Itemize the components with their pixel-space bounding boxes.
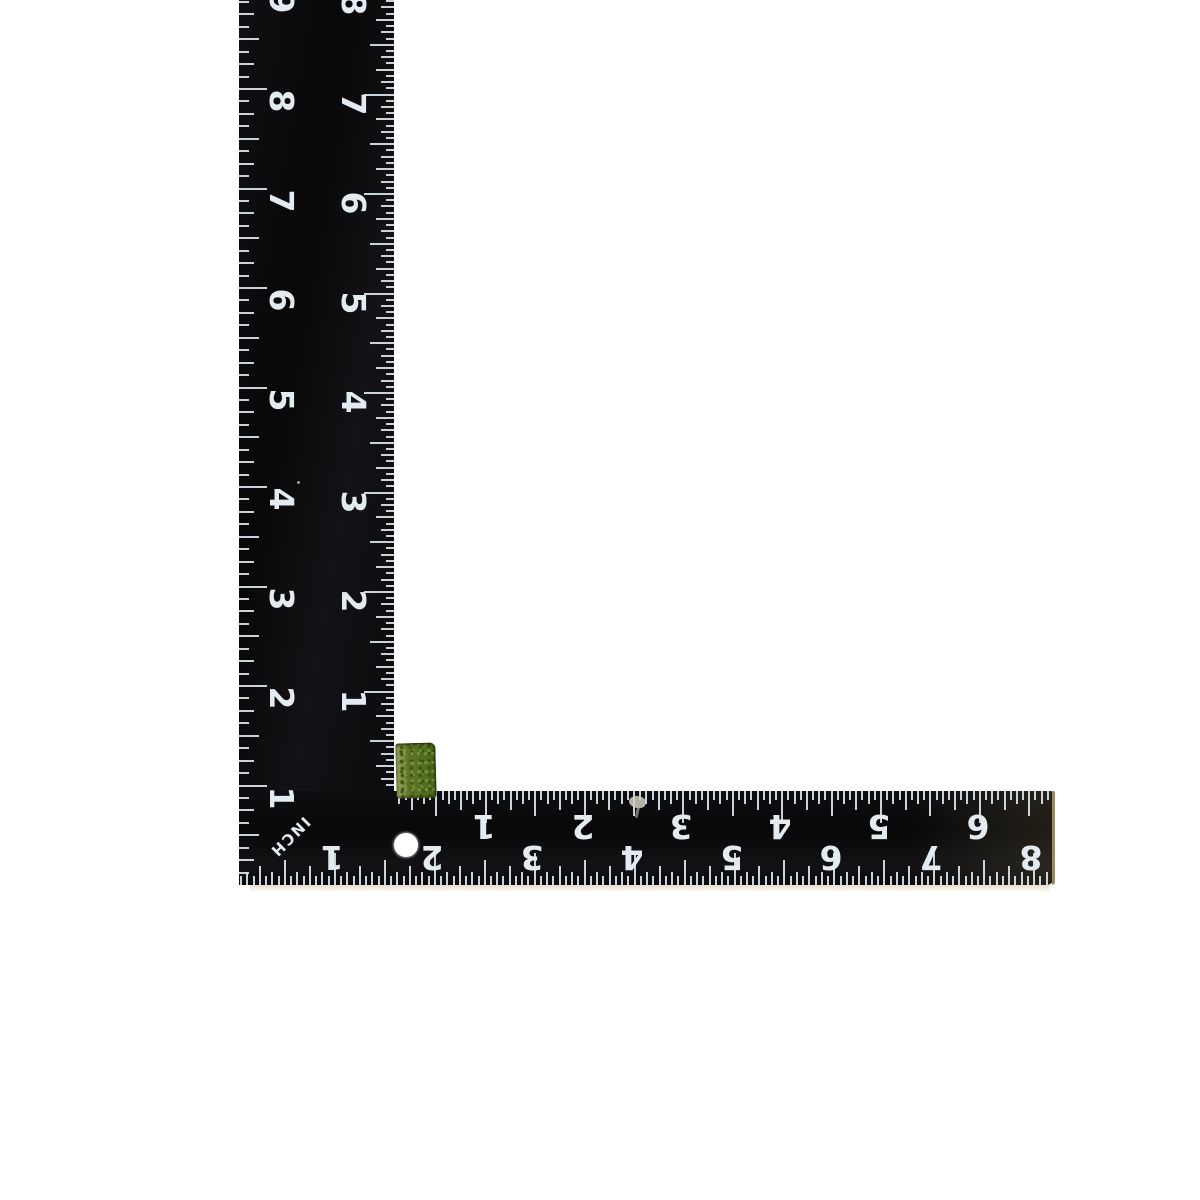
horizontal-inner-top-tick-sixteenth [454,791,456,800]
vertical-inner-right-tick-eighth [381,56,394,58]
horizontal-outer-bottom-tick-sixteenth [565,876,567,885]
vertical-outer-left-tick-quarter [239,312,254,314]
vertical-inner-right-tick-eighth [381,31,394,33]
vertical-outer-left-tick-eighth [239,349,249,351]
vertical-inner-right-tick-half [370,143,394,145]
horizontal-inner-top-tick-sixteenth [528,791,530,800]
vertical-inner-right-tick-sixteenth [386,336,394,338]
vertical-inner-right-tick-sixteenth [386,13,394,15]
horizontal-inner-top-tick-sixteenth [1034,791,1036,800]
horizontal-outer-bottom-tick-quarter [559,866,561,885]
bottom-edge-shadow [250,885,1050,892]
vertical-inner-right-tick-sixteenth [386,75,394,77]
vertical-inner-right-tick-sixteenth [386,734,394,736]
horizontal-outer-bottom-tick-quarter [758,866,760,885]
vertical-outer-left-tick-quarter [239,13,254,15]
horizontal-inner-top-tick-sixteenth [664,791,666,800]
vertical-outer-left-tick-eighth [239,449,249,451]
vertical-inner-right-tick-sixteenth [386,485,394,487]
horizontal-outer-bottom-tick-sixteenth [240,876,242,885]
horizontal-inner-top-tick-sixteenth [923,791,925,800]
vertical-inner-right-tick-sixteenth [386,622,394,624]
horizontal-outer-bottom-tick-sixteenth [765,876,767,885]
vertical-inner-right-tick-sixteenth [386,784,394,786]
horizontal-outer-bottom-number-5: 5 [710,835,754,879]
vertical-inner-right-tick-quarter [376,317,394,319]
horizontal-inner-top-tick-sixteenth [689,791,691,800]
horizontal-outer-bottom-tick-sixteenth [1002,876,1004,885]
vertical-outer-left-tick-eighth [239,847,249,849]
vertical-inner-right-tick-sixteenth [386,498,394,500]
horizontal-inner-top-tick-sixteenth [948,791,950,800]
horizontal-inner-top-tick-quarter [905,791,907,810]
vertical-outer-left-number-5: 5 [259,378,303,422]
vertical-inner-right-tick-sixteenth [386,722,394,724]
vertical-outer-left-tick-eighth [239,598,249,600]
vertical-outer-left-tick-eighth [239,498,249,500]
horizontal-inner-top-tick-sixteenth [540,791,542,800]
horizontal-inner-top-tick-sixteenth [503,791,505,800]
horizontal-inner-top-tick-sixteenth [738,791,740,800]
horizontal-inner-top-tick-sixteenth [1010,791,1012,800]
vertical-inner-right-number-6: 6 [331,181,375,225]
vertical-outer-left-tick-eighth [239,374,249,376]
vertical-inner-right-tick-sixteenth [386,100,394,102]
horizontal-inner-top-tick-eighth [522,791,524,804]
vertical-outer-left-tick-quarter [239,660,254,662]
vertical-inner-right-tick-sixteenth [386,187,394,189]
vertical-inner-right-tick-eighth [381,355,394,357]
vertical-inner-right-number-7: 7 [331,82,375,126]
vertical-inner-right-tick-sixteenth [386,386,394,388]
horizontal-inner-top-tick-sixteenth [849,791,851,800]
horizontal-inner-top-tick-eighth [942,791,944,804]
vertical-inner-right-tick-eighth [381,429,394,431]
vertical-inner-right-tick-sixteenth [386,87,394,89]
horizontal-outer-bottom-tick-eighth [996,872,998,885]
horizontal-outer-bottom-tick-eighth [571,872,573,885]
vertical-inner-right-tick-quarter [376,467,394,469]
vertical-inner-right-tick-eighth [381,6,394,8]
horizontal-inner-top-tick-sixteenth [466,791,468,800]
vertical-inner-right-tick-eighth [381,554,394,556]
vertical-inner-right-tick-quarter [376,118,394,120]
vertical-inner-right-tick-sixteenth [386,373,394,375]
vertical-outer-left-tick-eighth [239,822,249,824]
horizontal-inner-top-tick-sixteenth [997,791,999,800]
vertical-outer-left-tick-eighth [239,125,249,127]
vertical-outer-left-number-2: 2 [259,676,303,720]
vertical-inner-right-tick-sixteenth [386,473,394,475]
vertical-inner-right-tick-sixteenth [386,237,394,239]
vertical-inner-right-tick-eighth [381,255,394,257]
horizontal-inner-top-tick-sixteenth [899,791,901,800]
vertical-inner-right-tick-eighth [381,504,394,506]
vertical-inner-right-tick-sixteenth [386,324,394,326]
horizontal-inner-top-tick-sixteenth [936,791,938,800]
horizontal-outer-bottom-tick-sixteenth [865,876,867,885]
vertical-outer-left-tick-eighth [239,722,249,724]
vertical-inner-right-tick-eighth [381,728,394,730]
vertical-outer-left-tick-quarter [239,710,254,712]
horizontal-outer-bottom-tick-eighth [671,872,673,885]
horizontal-outer-bottom-tick-half [983,860,985,885]
horizontal-inner-top-tick-eighth [621,791,623,804]
vertical-inner-right-tick-sixteenth [386,610,394,612]
horizontal-outer-bottom-number-6: 6 [809,835,853,879]
vertical-outer-left-tick-eighth [239,51,249,53]
horizontal-inner-top-tick-sixteenth [812,791,814,800]
vertical-inner-right-tick-quarter [376,516,394,518]
vertical-outer-left-number-6: 6 [259,278,303,322]
vertical-outer-left-tick-eighth [239,76,249,78]
vertical-inner-right-tick-quarter [376,666,394,668]
horizontal-inner-top-number-2: 2 [561,804,605,848]
horizontal-inner-top-tick-quarter [608,791,610,810]
vertical-outer-left-tick-eighth [239,673,249,675]
vertical-inner-right-tick-eighth [381,703,394,705]
vertical-inner-right-tick-eighth [381,404,394,406]
horizontal-outer-bottom-tick-half [684,860,686,885]
vertical-inner-right-tick-eighth [381,181,394,183]
vertical-outer-left-tick-eighth [239,26,249,28]
vertical-inner-right-tick-sixteenth [386,510,394,512]
horizontal-inner-top-tick-eighth [892,791,894,804]
vertical-inner-right-tick-quarter [376,69,394,71]
horizontal-inner-top-tick-eighth [448,791,450,804]
vertical-inner-right-tick-half [370,243,394,245]
vertical-inner-right-tick-sixteenth [386,25,394,27]
horizontal-outer-bottom-tick-half [584,860,586,885]
horizontal-inner-top-tick-sixteenth [652,791,654,800]
vertical-outer-left-tick-half [239,735,259,737]
vertical-outer-left-tick-eighth [239,250,249,252]
vertical-inner-right-tick-sixteenth [386,697,394,699]
vertical-outer-left-tick-quarter [239,411,254,413]
vertical-inner-right-tick-sixteenth [386,199,394,201]
horizontal-outer-bottom-tick-eighth [896,872,898,885]
vertical-outer-left-tick-half [239,635,259,637]
hang-hole [394,833,418,857]
vertical-inner-right-tick-sixteenth [386,535,394,537]
vertical-inner-right-tick-sixteenth [386,212,394,214]
vertical-inner-right-tick-half [370,641,394,643]
horizontal-inner-top-tick-eighth [744,791,746,804]
vertical-outer-left-number-9: 9 [259,0,303,24]
vertical-outer-left-tick-eighth [239,200,249,202]
vertical-outer-left-tick-half [239,436,259,438]
horizontal-outer-bottom-tick-sixteenth [665,876,667,885]
horizontal-outer-bottom-tick-eighth [296,872,298,885]
horizontal-inner-top-tick-sixteenth [1047,791,1049,800]
vertical-inner-right-tick-quarter [376,765,394,767]
vertical-inner-right-tick-eighth [381,106,394,108]
vertical-inner-right-number-8: 8 [331,0,375,26]
green-cube [395,742,436,798]
horizontal-outer-bottom-tick-quarter [259,866,261,885]
vertical-outer-left-tick-quarter [239,163,254,165]
vertical-inner-right-tick-half [370,740,394,742]
horizontal-outer-bottom-tick-sixteenth [802,876,804,885]
horizontal-inner-top-tick-quarter [1004,791,1006,810]
horizontal-inner-top-number-3: 3 [659,804,703,848]
horizontal-outer-bottom-tick-eighth [371,872,373,885]
vertical-outer-left-tick-quarter [239,262,254,264]
vertical-inner-right-tick-sixteenth [386,771,394,773]
vertical-inner-right-tick-half [370,541,394,543]
vertical-inner-right-tick-half [370,342,394,344]
horizontal-inner-top-tick-sixteenth [442,791,444,800]
horizontal-outer-bottom-tick-half [284,860,286,885]
horizontal-inner-top-tick-sixteenth [701,791,703,800]
horizontal-outer-bottom-tick-eighth [271,872,273,885]
vertical-outer-left-tick-half [239,834,259,836]
vertical-inner-right-tick-eighth [381,778,394,780]
vertical-inner-right-tick-half [370,44,394,46]
vertical-outer-left-tick-eighth [239,747,249,749]
vertical-inner-right-tick-eighth [381,330,394,332]
horizontal-inner-top-tick-eighth [719,791,721,804]
horizontal-outer-bottom-tick-sixteenth [902,876,904,885]
horizontal-outer-bottom-tick-half [783,860,785,885]
horizontal-inner-top-tick-half [929,791,931,816]
vertical-outer-left-tick-quarter [239,511,254,513]
horizontal-inner-top-number-5: 5 [857,804,901,848]
vertical-outer-left-tick-eighth [239,474,249,476]
vertical-inner-right-tick-sixteenth [386,299,394,301]
horizontal-inner-top-tick-eighth [695,791,697,804]
horizontal-outer-bottom-tick-sixteenth [478,876,480,885]
horizontal-outer-bottom-tick-eighth [471,872,473,885]
horizontal-inner-top-tick-half [831,791,833,816]
horizontal-outer-bottom-tick-sixteenth [502,876,504,885]
vertical-outer-left-tick-eighth [239,697,249,699]
vertical-outer-left-tick-eighth [239,523,249,525]
vertical-inner-right-tick-eighth [381,529,394,531]
vertical-inner-right-number-3: 3 [331,480,375,524]
horizontal-inner-top-tick-quarter [806,791,808,810]
vertical-inner-right-number-5: 5 [331,281,375,325]
vertical-outer-left-tick-quarter [239,610,254,612]
vertical-inner-right-tick-sixteenth [386,659,394,661]
vertical-inner-right-tick-sixteenth [386,261,394,263]
vertical-inner-right-tick-sixteenth [386,436,394,438]
vertical-inner-right-tick-sixteenth [386,647,394,649]
vertical-outer-left-tick-eighth [239,399,249,401]
vertical-inner-right-tick-eighth [381,230,394,232]
horizontal-outer-bottom-tick-sixteenth [777,876,779,885]
vertical-inner-right-tick-eighth [381,628,394,630]
vertical-inner-right-tick-sixteenth [386,249,394,251]
vertical-inner-right-tick-sixteenth [386,174,394,176]
horizontal-inner-top-tick-sixteenth [479,791,481,800]
horizontal-inner-top-tick-sixteenth [960,791,962,800]
horizontal-outer-bottom-tick-sixteenth [890,876,892,885]
horizontal-inner-top-tick-sixteenth [553,791,555,800]
vertical-outer-left-tick-eighth [239,424,249,426]
vertical-inner-right-tick-quarter [376,566,394,568]
vertical-inner-right-number-2: 2 [331,579,375,623]
vertical-inner-right-tick-sixteenth [386,597,394,599]
horizontal-outer-bottom-tick-sixteenth [390,876,392,885]
vertical-inner-right-tick-sixteenth [386,523,394,525]
vertical-inner-right-tick-sixteenth [386,137,394,139]
horizontal-inner-top-tick-eighth [868,791,870,804]
vertical-inner-right-tick-sixteenth [386,635,394,637]
vertical-inner-right-tick-sixteenth [386,746,394,748]
horizontal-outer-bottom-tick-sixteenth [977,876,979,885]
horizontal-inner-top-tick-sixteenth [874,791,876,800]
horizontal-inner-top-tick-eighth [991,791,993,804]
vertical-outer-left-tick-eighth [239,648,249,650]
vertical-outer-left-tick-eighth [239,548,249,550]
horizontal-outer-bottom-tick-sixteenth [965,876,967,885]
vertical-inner-right-tick-half [370,442,394,444]
photo-scene: 1234567891234567812345612345678 INCH [0,0,1200,1200]
vertical-inner-right-tick-sixteenth [386,398,394,400]
vertical-outer-left-tick-half [239,38,259,40]
vertical-outer-left-tick-quarter [239,809,254,811]
horizontal-outer-bottom-tick-sixteenth [790,876,792,885]
horizontal-inner-top-tick-eighth [794,791,796,804]
vertical-outer-left-number-7: 7 [259,179,303,223]
vertical-outer-left-tick-quarter [239,760,254,762]
horizontal-inner-top-tick-sixteenth [726,791,728,800]
vertical-inner-right-tick-sixteenth [386,423,394,425]
vertical-inner-right-tick-sixteenth [386,684,394,686]
vertical-inner-right-tick-sixteenth [386,224,394,226]
vertical-inner-right-tick-eighth [381,305,394,307]
horizontal-inner-top-tick-eighth [818,791,820,804]
horizontal-outer-bottom-tick-sixteenth [690,876,692,885]
horizontal-outer-bottom-number-8: 8 [1009,835,1053,879]
vertical-outer-left-tick-quarter [239,63,254,65]
horizontal-inner-top-tick-sixteenth [775,791,777,800]
horizontal-outer-bottom-tick-quarter [958,866,960,885]
vertical-outer-left-tick-eighth [239,797,249,799]
horizontal-outer-bottom-tick-sixteenth [378,876,380,885]
horizontal-outer-bottom-tick-sixteenth [403,876,405,885]
horizontal-outer-bottom-tick-sixteenth [265,876,267,885]
horizontal-inner-top-tick-eighth [1016,791,1018,804]
horizontal-outer-bottom-tick-half [883,860,885,885]
vertical-outer-left-tick-eighth [239,772,249,774]
vertical-inner-right-tick-sixteenth [386,448,394,450]
horizontal-outer-bottom-tick-sixteenth [290,876,292,885]
vertical-inner-right-tick-eighth [381,479,394,481]
horizontal-outer-bottom-number-4: 4 [610,835,654,879]
horizontal-inner-top-number-1: 1 [462,804,506,848]
vertical-inner-right-tick-sixteenth [386,709,394,711]
vertical-inner-right-tick-eighth [381,280,394,282]
horizontal-inner-top-tick-sixteenth [837,791,839,800]
horizontal-inner-top-tick-sixteenth [886,791,888,800]
vertical-inner-right-tick-eighth [381,131,394,133]
horizontal-outer-bottom-tick-sixteenth [590,876,592,885]
vertical-inner-right-tick-sixteenth [386,38,394,40]
horizontal-inner-top-tick-eighth [917,791,919,804]
horizontal-inner-top-tick-half [534,791,536,816]
horizontal-outer-bottom-tick-sixteenth [877,876,879,885]
vertical-inner-right-number-4: 4 [331,380,375,424]
vertical-inner-right-tick-sixteenth [386,460,394,462]
horizontal-inner-top-tick-eighth [571,791,573,804]
vertical-outer-left-tick-eighth [239,225,249,227]
horizontal-inner-top-tick-eighth [547,791,549,804]
horizontal-outer-bottom-number-3: 3 [510,835,554,879]
horizontal-inner-top-tick-sixteenth [861,791,863,800]
horizontal-inner-top-tick-half [1028,791,1030,816]
horizontal-inner-top-tick-sixteenth [614,791,616,800]
dust-speck [297,481,300,484]
horizontal-outer-bottom-tick-sixteenth [253,876,255,885]
vertical-inner-right-tick-sixteenth [386,572,394,574]
vertical-inner-right-tick-sixteenth [386,112,394,114]
horizontal-inner-top-tick-eighth [966,791,968,804]
vertical-outer-left-tick-half [239,337,259,339]
horizontal-outer-bottom-tick-eighth [246,872,248,885]
vertical-inner-right-tick-eighth [381,653,394,655]
vertical-inner-right-tick-sixteenth [386,560,394,562]
horizontal-outer-bottom-tick-half [384,860,386,885]
horizontal-inner-top-tick-sixteenth [750,791,752,800]
horizontal-outer-bottom-tick-sixteenth [278,876,280,885]
horizontal-inner-top-tick-sixteenth [676,791,678,800]
horizontal-inner-top-tick-eighth [670,791,672,804]
vertical-inner-right-tick-sixteenth [386,547,394,549]
vertical-inner-right-tick-sixteenth [386,0,394,2]
horizontal-outer-bottom-tick-eighth [971,872,973,885]
vertical-outer-left-tick-half [239,138,259,140]
horizontal-outer-bottom-tick-quarter [858,866,860,885]
horizontal-inner-top-tick-sixteenth [590,791,592,800]
horizontal-outer-bottom-tick-half [484,860,486,885]
vertical-outer-left-number-4: 4 [259,477,303,521]
horizontal-outer-bottom-tick-eighth [596,872,598,885]
horizontal-inner-top-tick-eighth [472,791,474,804]
vertical-inner-right-tick-quarter [376,218,394,220]
horizontal-outer-bottom-tick-sixteenth [303,876,305,885]
horizontal-inner-top-number-4: 4 [758,804,802,848]
vertical-inner-right-tick-sixteenth [386,585,394,587]
vertical-inner-right-tick-eighth [381,156,394,158]
horizontal-outer-bottom-tick-eighth [696,872,698,885]
horizontal-outer-bottom-tick-eighth [796,872,798,885]
horizontal-outer-bottom-tick-sixteenth [989,876,991,885]
horizontal-outer-bottom-tick-quarter [359,866,361,885]
vertical-inner-right-tick-eighth [381,579,394,581]
vertical-inner-right-number-1: 1 [331,679,375,723]
horizontal-inner-top-tick-quarter [510,791,512,810]
horizontal-inner-top-tick-eighth [497,791,499,804]
vertical-outer-left-tick-eighth [239,175,249,177]
horizontal-outer-bottom-tick-sixteenth [677,876,679,885]
vertical-outer-left-tick-quarter [239,859,254,861]
vertical-outer-left-tick-quarter [239,561,254,563]
horizontal-inner-top-tick-sixteenth [577,791,579,800]
vertical-outer-left-number-8: 8 [259,79,303,123]
vertical-inner-right-tick-quarter [376,715,394,717]
horizontal-outer-bottom-number-1: 1 [310,835,354,879]
horizontal-inner-top-number-6: 6 [956,804,1000,848]
vertical-outer-left-tick-half [239,237,259,239]
horizontal-outer-bottom-number-7: 7 [909,835,953,879]
horizontal-outer-bottom-tick-eighth [396,872,398,885]
vertical-inner-right-tick-quarter [376,417,394,419]
horizontal-inner-top-tick-sixteenth [973,791,975,800]
vertical-outer-left-tick-quarter [239,461,254,463]
horizontal-outer-bottom-tick-sixteenth [602,876,604,885]
